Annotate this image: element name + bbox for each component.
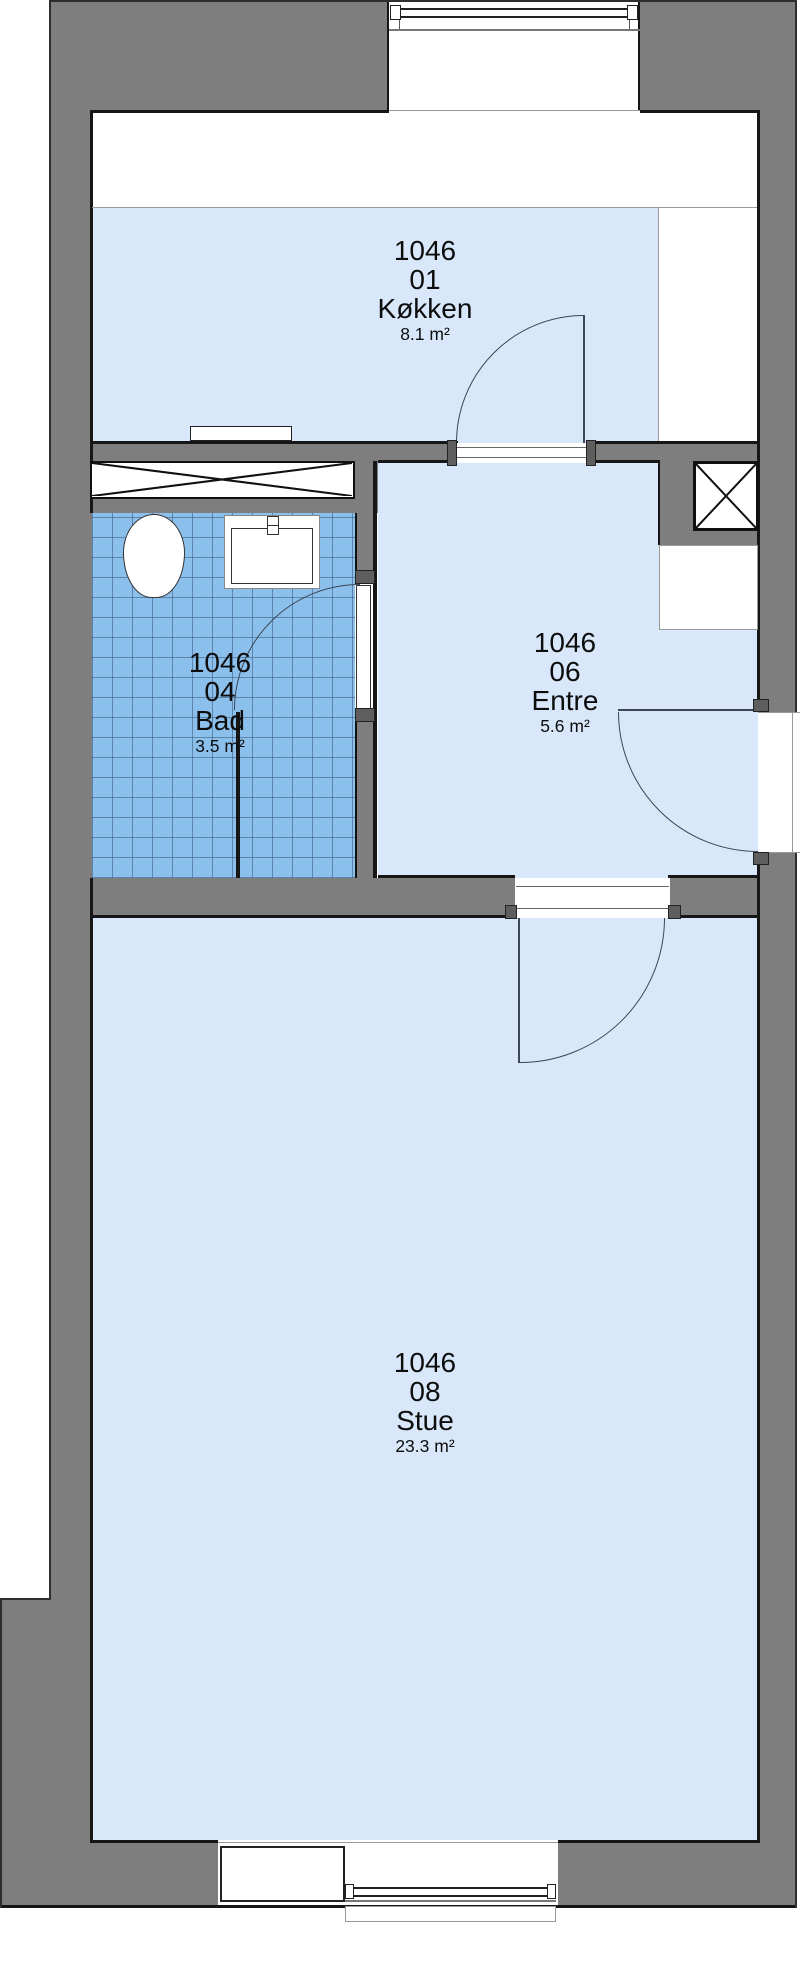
- room-name: Entre: [465, 686, 665, 715]
- kitchen-doorway-line1: [457, 447, 587, 448]
- room-id: 1046: [325, 1348, 525, 1377]
- room-id: 1046: [120, 648, 320, 677]
- window-top-end-right: [627, 5, 638, 20]
- room-label-living: 1046 08 Stue 23.3 m²: [325, 1348, 525, 1457]
- line-left-interior-upper: [90, 110, 93, 513]
- line-living-bottom-right: [558, 1840, 760, 1843]
- bathroom-door-jamb-top: [355, 570, 375, 584]
- shaft-symbol: [693, 461, 759, 531]
- wardrobe-x-icon: [92, 463, 352, 496]
- room-id: 1046: [465, 628, 665, 657]
- window-bottom-glazing: [354, 1887, 547, 1897]
- room-number: 06: [465, 657, 665, 686]
- window-top-glazing: [401, 8, 627, 18]
- line-recess-edge-right: [638, 2, 640, 110]
- wall-top-left: [92, 2, 389, 110]
- window-top-end-left: [390, 5, 401, 20]
- line-top-interior-right: [640, 110, 760, 113]
- faucet-divider: [267, 525, 279, 526]
- line-living-top-right: [668, 915, 760, 918]
- room-name: Køkken: [325, 294, 525, 323]
- room-area: 5.6 m²: [465, 715, 665, 737]
- sink-basin: [231, 528, 313, 584]
- window-bottom-sill: [345, 1900, 556, 1902]
- wall-top-right: [640, 2, 797, 110]
- living-doorway-line1: [516, 886, 669, 887]
- window-top-sill: [389, 29, 640, 31]
- floor-plan: 1046 01 Køkken 8.1 m² 1046 04 Bad 3.5 m²…: [0, 0, 800, 1969]
- room-number: 04: [120, 677, 320, 706]
- wall-below-shaft: [693, 530, 758, 545]
- wardrobe-symbol: [90, 461, 355, 499]
- room-id: 1046: [325, 236, 525, 265]
- line-left-interior-lower: [90, 878, 93, 1843]
- wall-entry-living-right: [670, 878, 760, 918]
- window-bottom-end-right: [547, 1884, 556, 1899]
- outline-left-bottom: [0, 1598, 51, 1600]
- outline-top: [49, 0, 797, 2]
- line-entry-left-edge: [373, 461, 377, 878]
- window-bottom-exterior-sill: [345, 1906, 556, 1922]
- line-kitchen-counter-right: [658, 208, 659, 441]
- line-top-interior-left: [90, 110, 389, 113]
- wall-left-bottom-block: [0, 1600, 92, 1905]
- room-name: Bad: [120, 706, 320, 735]
- room-label-bathroom: 1046 04 Bad 3.5 m²: [120, 648, 320, 757]
- wall-entry-shaft-column: [660, 463, 693, 545]
- outline-left-bottom-edge: [0, 1598, 2, 1908]
- living-door-arc: [520, 918, 665, 1063]
- line-kitchen-wall-top-right: [586, 441, 760, 444]
- line-entry-bottom-left: [378, 875, 515, 878]
- wall-entry-living-left: [92, 878, 515, 918]
- window-bottom-threshold: [218, 1842, 558, 1843]
- line-window-recess-bottom: [389, 110, 640, 111]
- kitchen-counter-element: [190, 426, 292, 441]
- line-entry-bottom-right: [668, 875, 760, 878]
- shaft-x-icon: [696, 464, 756, 528]
- wall-bottom-right: [558, 1843, 760, 1905]
- terrace-door-panel: [220, 1846, 345, 1902]
- line-right-interior-lower: [757, 853, 760, 1843]
- wall-right: [760, 110, 797, 1905]
- entrance-exterior-line: [792, 712, 793, 853]
- line-recess-edge-left: [387, 2, 389, 110]
- entrance-doorway-exterior: [758, 712, 800, 853]
- line-living-bottom-left: [90, 1840, 218, 1843]
- line-kitchen-wall-top-left: [90, 441, 458, 444]
- living-doorway-line2: [516, 908, 669, 909]
- room-name: Stue: [325, 1406, 525, 1435]
- kitchen-door-jamb-right: [586, 440, 596, 466]
- living-doorway: [516, 878, 669, 918]
- room-area: 23.3 m²: [325, 1435, 525, 1457]
- line-shaft-column-edge: [658, 461, 660, 545]
- room-area: 8.1 m²: [325, 323, 525, 345]
- room-entry-floor-upper: [378, 463, 660, 545]
- kitchen-doorway: [457, 443, 587, 463]
- living-door-jamb-right: [668, 905, 681, 919]
- wall-bath-right-lower: [357, 710, 373, 878]
- entrance-door-jamb-top: [753, 699, 769, 712]
- living-door-jamb-left: [505, 905, 517, 919]
- line-living-top-left: [92, 915, 515, 918]
- entrance-door-jamb-bottom: [753, 852, 769, 865]
- entry-builtin-cabinet: [659, 545, 758, 630]
- toilet: [123, 514, 185, 598]
- kitchen-doorway-line2: [457, 457, 587, 458]
- room-label-kitchen: 1046 01 Køkken 8.1 m²: [325, 236, 525, 345]
- room-number: 08: [325, 1377, 525, 1406]
- outline-right: [795, 0, 797, 1908]
- outline-left: [49, 0, 51, 1600]
- kitchen-door-jamb-left: [447, 440, 457, 466]
- room-number: 01: [325, 265, 525, 294]
- window-bottom-end-left: [345, 1884, 354, 1899]
- room-label-entry: 1046 06 Entre 5.6 m²: [465, 628, 665, 737]
- bathroom-door-jamb-bottom: [355, 708, 375, 722]
- room-area: 3.5 m²: [120, 735, 320, 757]
- wall-bottom-left: [92, 1843, 218, 1905]
